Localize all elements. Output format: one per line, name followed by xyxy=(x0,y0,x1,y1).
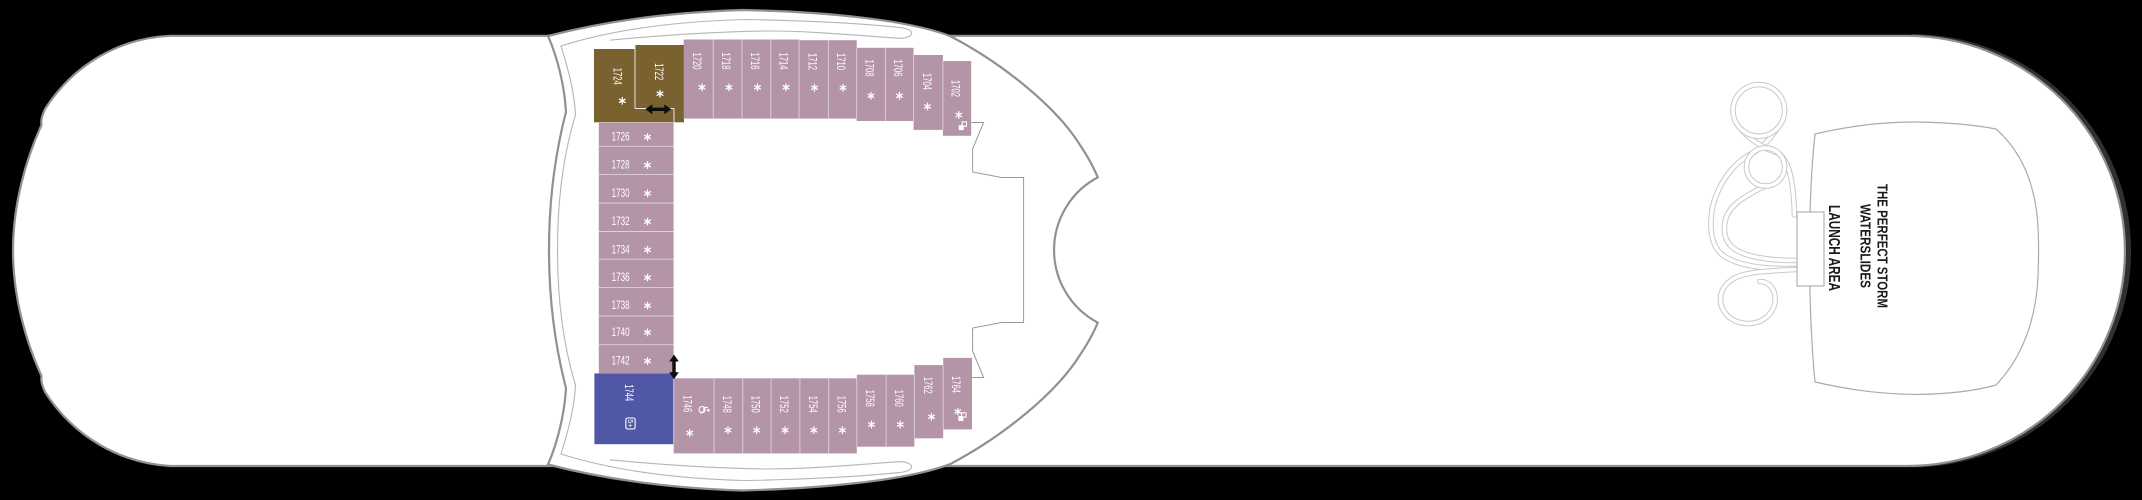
svg-text:LAUNCH AREA: LAUNCH AREA xyxy=(1825,205,1842,291)
svg-text:1714: 1714 xyxy=(777,53,789,70)
svg-text:1764: 1764 xyxy=(949,376,961,393)
svg-text:WATERSLIDES: WATERSLIDES xyxy=(1857,204,1873,288)
svg-text:THE PERFECT STORM: THE PERFECT STORM xyxy=(1874,184,1890,308)
svg-text:1728: 1728 xyxy=(612,160,630,172)
svg-text:1744: 1744 xyxy=(622,384,634,401)
svg-text:1716: 1716 xyxy=(748,53,760,70)
svg-text:1762: 1762 xyxy=(921,377,933,394)
svg-text:1748: 1748 xyxy=(720,396,732,413)
svg-text:5+: 5+ xyxy=(626,419,635,428)
svg-text:1726: 1726 xyxy=(612,132,630,144)
svg-text:1734: 1734 xyxy=(612,244,630,256)
svg-text:1730: 1730 xyxy=(612,188,630,200)
svg-text:1746: 1746 xyxy=(681,395,693,412)
svg-text:1742: 1742 xyxy=(612,356,630,368)
svg-text:1736: 1736 xyxy=(612,272,630,284)
svg-text:1710: 1710 xyxy=(834,53,846,70)
svg-text:1712: 1712 xyxy=(805,53,817,70)
svg-text:1754: 1754 xyxy=(806,396,818,413)
svg-text:1732: 1732 xyxy=(612,216,630,228)
svg-text:1702: 1702 xyxy=(949,80,961,97)
svg-text:1708: 1708 xyxy=(863,60,875,77)
svg-text:1750: 1750 xyxy=(749,396,761,413)
svg-text:1760: 1760 xyxy=(892,390,904,407)
svg-text:1756: 1756 xyxy=(834,396,846,413)
svg-text:1720: 1720 xyxy=(690,53,702,70)
svg-text:1722: 1722 xyxy=(652,63,664,80)
svg-text:1704: 1704 xyxy=(920,73,932,90)
svg-text:1706: 1706 xyxy=(891,60,903,77)
svg-text:1752: 1752 xyxy=(777,396,789,413)
svg-text:1740: 1740 xyxy=(612,327,630,339)
svg-text:1758: 1758 xyxy=(863,390,875,407)
svg-text:1718: 1718 xyxy=(719,53,731,70)
svg-text:1738: 1738 xyxy=(612,300,630,312)
svg-text:1724: 1724 xyxy=(610,68,622,85)
